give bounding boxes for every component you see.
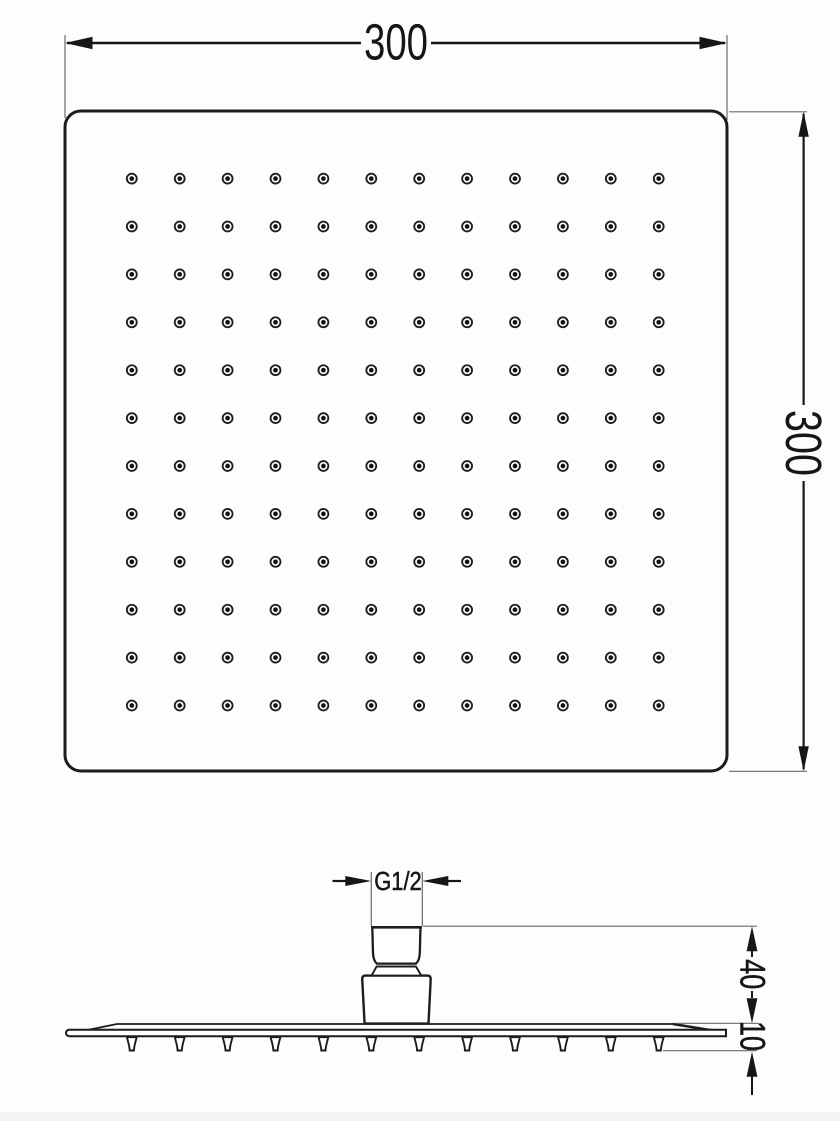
svg-text:40: 40 — [732, 959, 771, 989]
svg-text:300: 300 — [775, 410, 832, 476]
svg-text:10: 10 — [732, 1021, 771, 1051]
svg-text:300: 300 — [364, 14, 428, 71]
svg-text:G1/2: G1/2 — [374, 866, 422, 896]
